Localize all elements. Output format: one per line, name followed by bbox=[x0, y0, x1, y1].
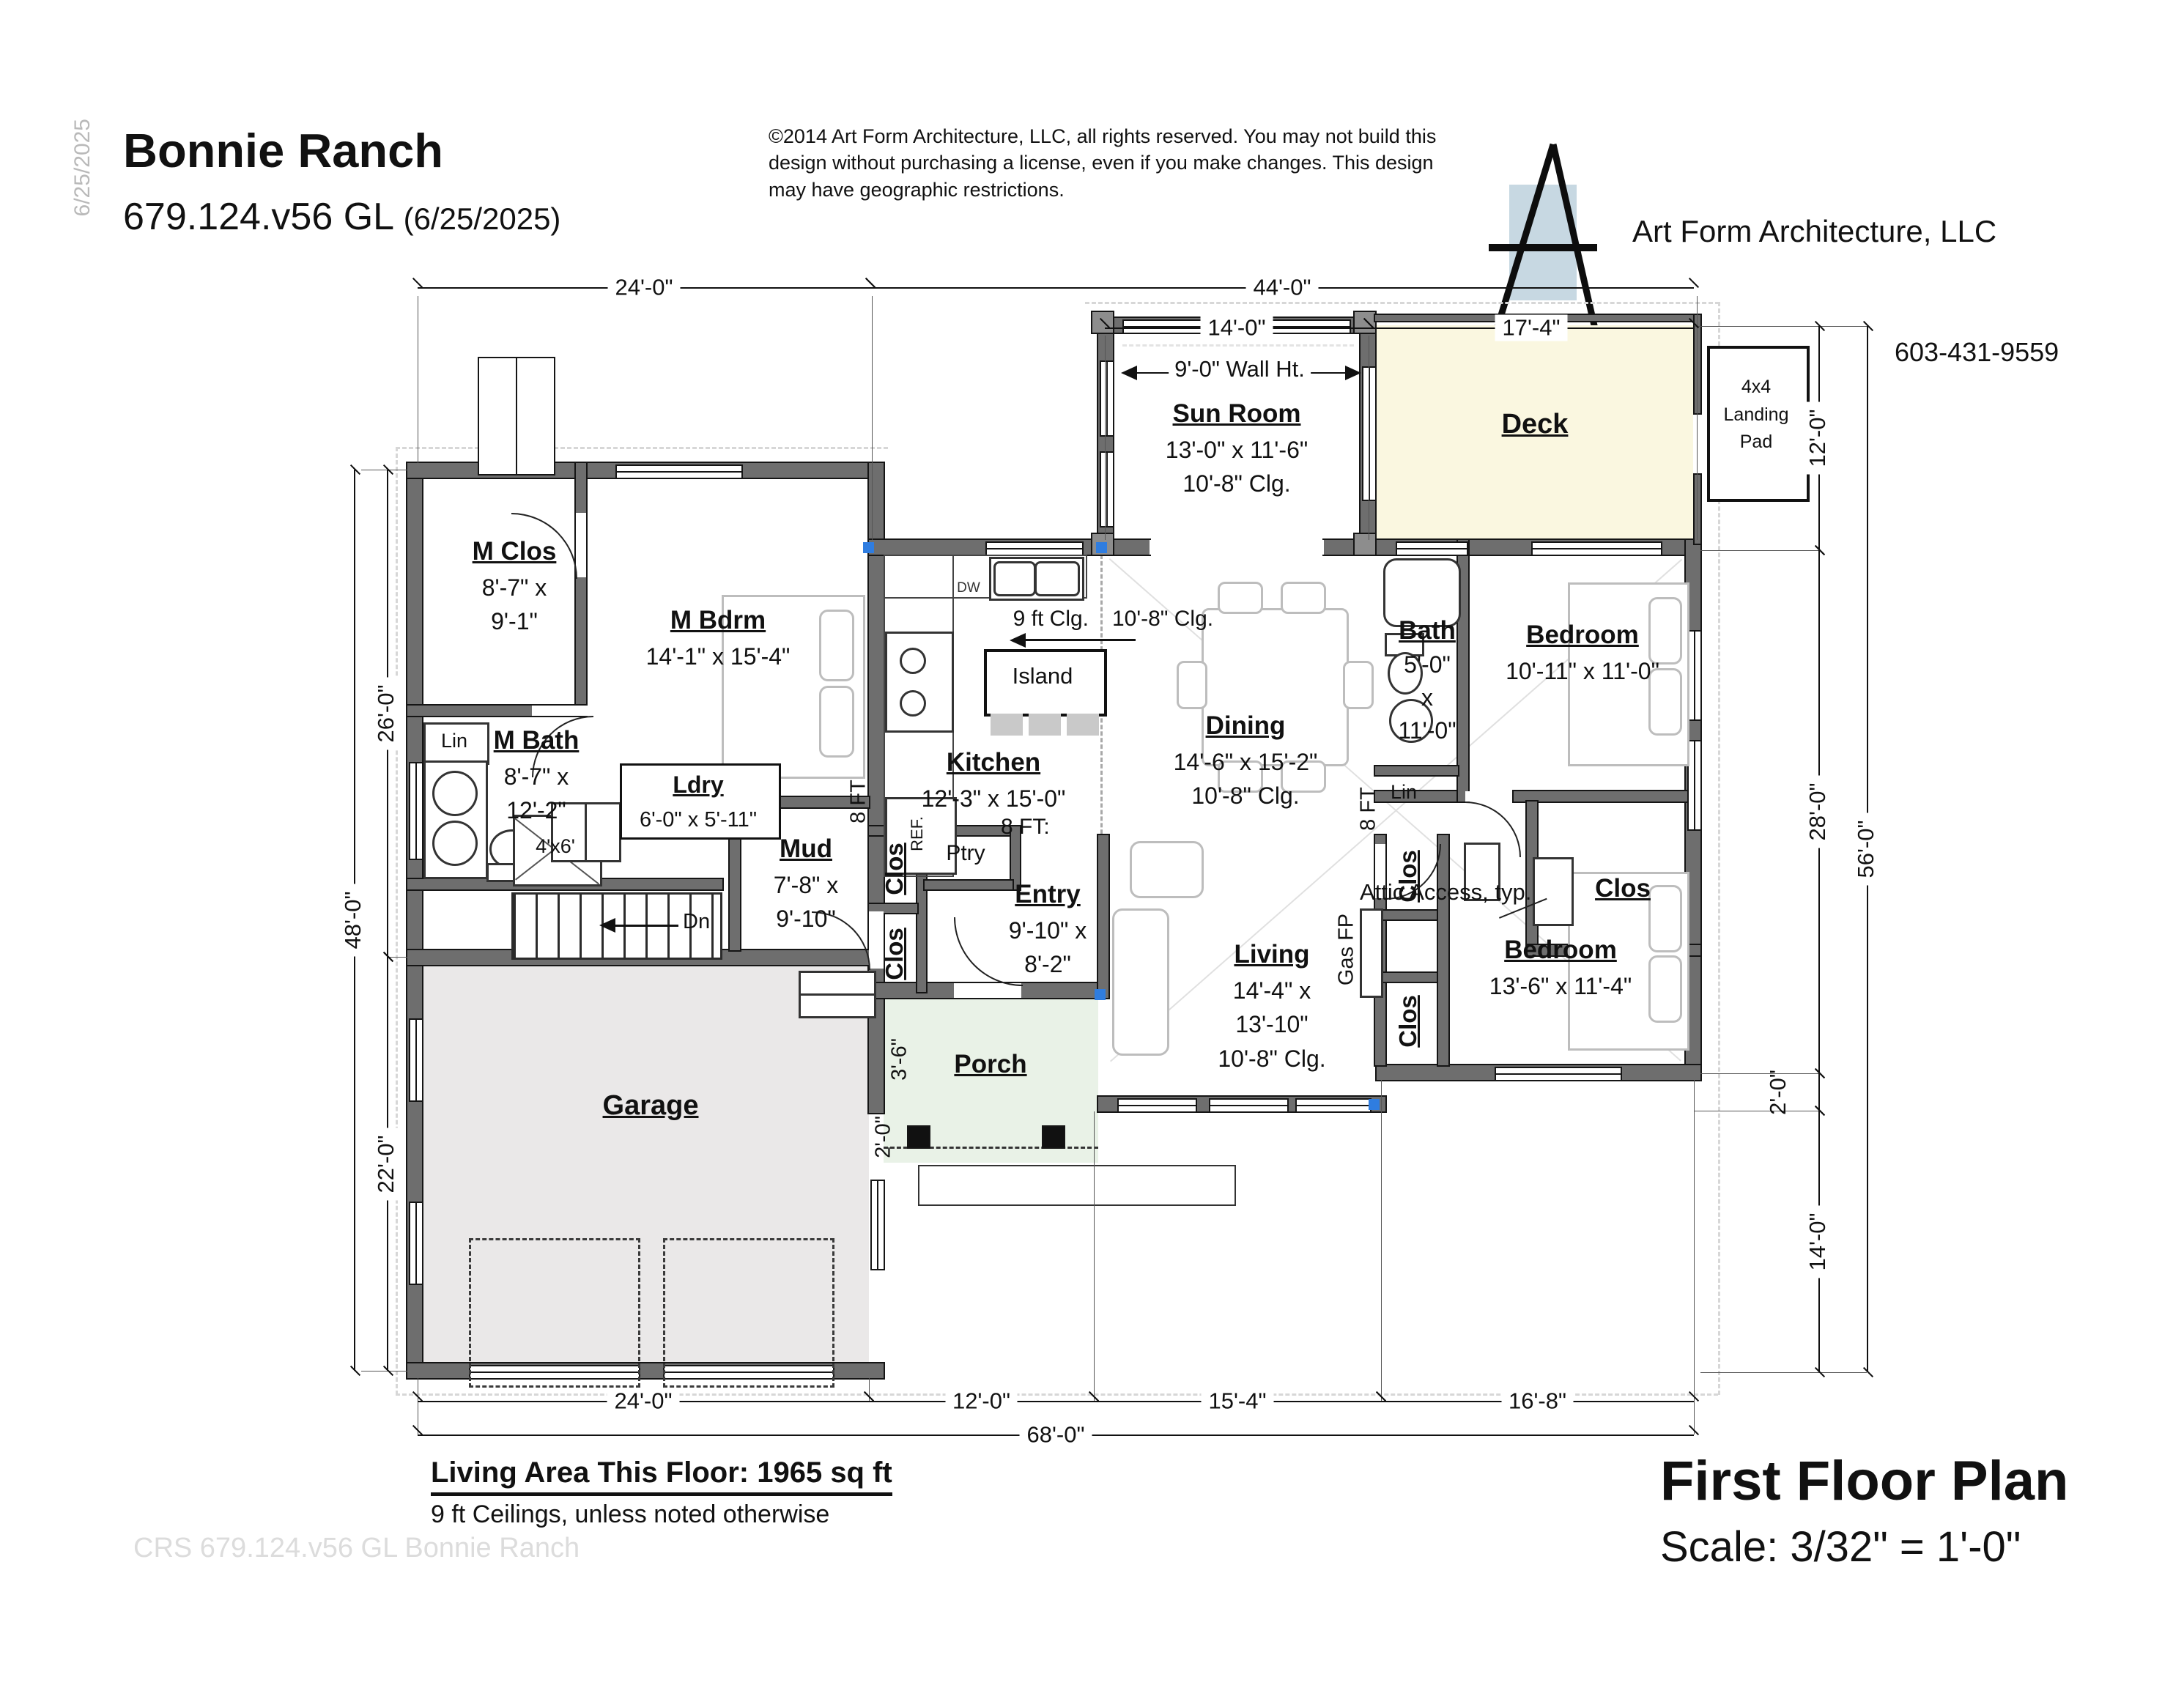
ref-label: REF. bbox=[908, 816, 927, 851]
dim-label: 56'-0" bbox=[1853, 813, 1879, 886]
deck-door bbox=[1362, 366, 1377, 501]
dim-bottom-bedroom: 16'-8" bbox=[1381, 1401, 1694, 1402]
window bbox=[1531, 541, 1662, 556]
dim-left-master: 26'-0" bbox=[387, 470, 388, 957]
eight-ft-marker: 8 FT bbox=[1357, 787, 1381, 831]
dim-right-deck: 12'-0" bbox=[1818, 326, 1820, 550]
sunroom-clg: 10'-8" Clg. bbox=[1182, 470, 1290, 497]
room-label-clos-bedroom1: Clos bbox=[1595, 870, 1651, 908]
living-area-note: Living Area This Floor: 1965 sq ft bbox=[431, 1456, 892, 1496]
wall bbox=[925, 881, 1013, 889]
landing-pad-label: 4x4 Landing Pad bbox=[1724, 374, 1789, 456]
deck-name: Deck bbox=[1502, 404, 1569, 445]
mbath-name: M Bath bbox=[494, 722, 580, 760]
porch-steps bbox=[918, 1165, 1236, 1206]
room-label-bedroom2: Bedroom 13'-6" x 11'-4" bbox=[1489, 932, 1632, 1003]
stool-icon bbox=[991, 714, 1023, 736]
chair-icon bbox=[1343, 661, 1374, 709]
room-label-bath: Bath 5'-0" x 11'-0" bbox=[1398, 612, 1456, 747]
extension-line bbox=[361, 1371, 407, 1371]
door-opening bbox=[532, 706, 592, 716]
dim-label: 2'-0" bbox=[1765, 1062, 1791, 1122]
dim-label: 14'-0" bbox=[1804, 1205, 1831, 1278]
drawing-scale: Scale: 3/32" = 1'-0" bbox=[1660, 1522, 2021, 1572]
dim-label: 24'-0" bbox=[608, 275, 681, 301]
pillow-icon bbox=[819, 610, 854, 681]
dim-bottom-garage: 24'-0" bbox=[418, 1401, 869, 1402]
front-door-opening bbox=[954, 983, 1021, 998]
wall bbox=[1375, 973, 1448, 982]
room-label-bedroom1: Bedroom 10'-11" x 11'-0" bbox=[1506, 617, 1659, 688]
living-name: Living bbox=[1218, 936, 1325, 974]
attic-access-note: Attic Access, typ. bbox=[1360, 879, 1531, 906]
kitchen-size: 12'-3" x 15'-0" bbox=[922, 785, 1066, 812]
extension-line bbox=[1695, 326, 1867, 327]
dim-top-garage: 24'-0" bbox=[418, 287, 870, 289]
chair-icon bbox=[1177, 661, 1207, 709]
chair-icon bbox=[1281, 582, 1326, 614]
extension-line bbox=[1700, 550, 1818, 551]
gas-fp-label: Gas FP bbox=[1335, 914, 1359, 985]
dim-label: 14'-0" bbox=[1201, 315, 1273, 341]
glazing-marker bbox=[1095, 989, 1106, 1000]
bath-size3: 11'-0" bbox=[1398, 717, 1456, 744]
garage-door-track bbox=[469, 1238, 640, 1388]
extension-line bbox=[1695, 1111, 1818, 1111]
chair-icon bbox=[1218, 582, 1263, 614]
copyright-note: ©2014 Art Form Architecture, LLC, all ri… bbox=[769, 123, 1443, 203]
room-label-living: Living 14'-4" x 13'-10" 10'-8" Clg. bbox=[1218, 936, 1325, 1076]
opening bbox=[1150, 540, 1324, 555]
pillow-icon bbox=[819, 686, 854, 758]
living-size1: 14'-4" x bbox=[1233, 977, 1311, 1004]
room-label-mbath: M Bath 8'-7" x 12'-2" bbox=[494, 722, 580, 828]
clos-bedroom1-name: Clos bbox=[1595, 870, 1651, 908]
dim-bottom-total: 68'-0" bbox=[418, 1435, 1694, 1436]
mbath-size1: 8'-7" x bbox=[504, 763, 569, 790]
ceiling-arrow-line bbox=[1026, 639, 1136, 641]
deck-rail bbox=[1695, 475, 1700, 544]
extension-line bbox=[1697, 296, 1698, 540]
pillow-icon bbox=[1648, 955, 1682, 1023]
company-logo-icon bbox=[1487, 128, 1612, 341]
stool-icon bbox=[1067, 714, 1099, 736]
room-label-dining: Dining 14'-6" x 15'-2" 10'-8" Clg. bbox=[1174, 708, 1318, 813]
extension-line bbox=[1105, 336, 1106, 540]
fireplace-icon bbox=[1360, 908, 1383, 998]
ceiling-9-note: 9 ft Clg. bbox=[942, 607, 1089, 632]
kitchen-name: Kitchen bbox=[922, 744, 1066, 782]
dining-size: 14'-6" x 15'-2" bbox=[1174, 749, 1318, 775]
watermark: CRS 679.124.v56 GL Bonnie Ranch bbox=[133, 1533, 580, 1564]
wall bbox=[576, 463, 586, 716]
door-opening bbox=[576, 513, 586, 577]
porch-post bbox=[1043, 1127, 1064, 1147]
eight-ft-note: 8 FT: bbox=[1001, 815, 1050, 840]
drawing-title: First Floor Plan bbox=[1660, 1449, 2068, 1513]
bedroom2-name: Bedroom bbox=[1489, 932, 1632, 969]
extension-line bbox=[1694, 1080, 1695, 1435]
dim-porch-depth: 3'-6" bbox=[888, 1038, 912, 1081]
company-name: Art Form Architecture, LLC bbox=[1632, 214, 1996, 249]
extension-line bbox=[418, 296, 418, 463]
wall bbox=[1375, 766, 1458, 775]
mud-name: Mud bbox=[774, 831, 839, 868]
porch-name: Porch bbox=[954, 1046, 1026, 1084]
living-clg: 10'-8" Clg. bbox=[1218, 1045, 1325, 1072]
mclos-size2: 9'-1" bbox=[491, 608, 538, 634]
dim-label: 12'-0" bbox=[945, 1388, 1018, 1415]
window bbox=[1117, 1098, 1197, 1113]
overhang-line bbox=[1085, 302, 1720, 304]
dim-label: 16'-8" bbox=[1501, 1388, 1574, 1415]
bath-name: Bath bbox=[1398, 612, 1456, 648]
sheet-side-date: 6/25/2025 bbox=[70, 119, 95, 216]
living-size2: 13'-10" bbox=[1235, 1011, 1308, 1037]
landing-pad-line1: 4x4 bbox=[1741, 377, 1771, 397]
clos-label: Clos bbox=[881, 843, 908, 895]
entry-size1: 9'-10" x bbox=[1009, 917, 1087, 944]
glazing-marker bbox=[863, 542, 874, 553]
door-opening bbox=[1465, 791, 1509, 802]
extension-line bbox=[872, 296, 873, 540]
wall-height-arrow bbox=[1121, 366, 1137, 380]
room-label-mclos: M Clos 8'-7" x 9'-1" bbox=[473, 533, 557, 639]
island-label: Island bbox=[1013, 663, 1073, 689]
wall bbox=[1438, 835, 1448, 1065]
sunroom-name: Sun Room bbox=[1166, 396, 1308, 433]
glazing-marker bbox=[1096, 542, 1107, 553]
room-label-sunroom: Sun Room 13'-0" x 11'-6" 10'-8" Clg. bbox=[1166, 396, 1308, 501]
stairs-down-label: Dn bbox=[683, 910, 710, 934]
dim-label: 68'-0" bbox=[1020, 1422, 1092, 1448]
deck-rail bbox=[1695, 315, 1700, 413]
dim-right-main: 28'-0" bbox=[1818, 550, 1820, 1073]
dryer-icon bbox=[585, 802, 621, 862]
mclos-name: M Clos bbox=[473, 533, 557, 571]
dim-label: 44'-0" bbox=[1246, 275, 1319, 301]
landing-pad-line3: Pad bbox=[1740, 432, 1772, 452]
landing-pad-line2: Landing bbox=[1724, 404, 1789, 425]
dw-label: DW bbox=[957, 580, 980, 596]
room-label-mbdrm: M Bdrm 14'-1" x 15'-4" bbox=[646, 602, 791, 673]
bath-size1: 5'-0" bbox=[1404, 651, 1451, 678]
room-label-mud: Mud 7'-8" x 9'-10" bbox=[774, 831, 839, 936]
entry-size2: 8'-2" bbox=[1024, 951, 1071, 977]
sunroom-ceiling-line bbox=[1122, 344, 1354, 347]
dim-label: 12'-0" bbox=[1804, 402, 1831, 475]
sunroom-size: 13'-0" x 11'-6" bbox=[1166, 437, 1308, 463]
post bbox=[1355, 312, 1375, 333]
dim-label: 28'-0" bbox=[1804, 776, 1831, 848]
dim-porch-overhang: 2'-0" bbox=[872, 1116, 896, 1158]
bedroom1-name: Bedroom bbox=[1506, 617, 1659, 654]
extension-line bbox=[1094, 1111, 1095, 1401]
glazing-marker bbox=[1369, 1099, 1380, 1110]
wall bbox=[1098, 835, 1108, 998]
mud-size2: 9'-10" bbox=[776, 906, 836, 932]
dim-bottom-porch: 12'-0" bbox=[869, 1401, 1094, 1402]
window bbox=[1209, 1098, 1289, 1113]
overhang-line bbox=[396, 447, 888, 449]
window bbox=[409, 1202, 423, 1285]
sink-icon bbox=[432, 771, 478, 816]
ceiling-108-note: 10'-8" Clg. bbox=[1112, 607, 1213, 632]
porch-post bbox=[908, 1127, 929, 1147]
extension-line bbox=[418, 1378, 418, 1435]
garage-name: Garage bbox=[603, 1086, 699, 1126]
clos-label: Clos bbox=[1394, 995, 1422, 1048]
dim-label: 48'-0" bbox=[340, 884, 366, 957]
lin-label: Lin bbox=[441, 730, 467, 752]
window bbox=[1687, 630, 1702, 721]
ldry-name: Ldry bbox=[640, 768, 757, 802]
shower-size-label: 4'x6' bbox=[536, 835, 575, 858]
dim-label: 22'-0" bbox=[373, 1128, 399, 1200]
dim-label: 24'-0" bbox=[607, 1388, 680, 1415]
sink-icon bbox=[432, 821, 478, 866]
sink-basin bbox=[1034, 561, 1080, 596]
dining-name: Dining bbox=[1174, 708, 1318, 745]
window bbox=[870, 1180, 885, 1270]
dim-top-deck: 17'-4" bbox=[1369, 327, 1694, 329]
plan-number: 679.124.v56 GL (6/25/2025) bbox=[123, 195, 560, 239]
extension-line bbox=[1381, 1080, 1382, 1401]
dim-top-sun: 14'-0" bbox=[1105, 327, 1369, 329]
lin-label: Lin bbox=[1391, 781, 1417, 804]
mclos-size1: 8'-7" x bbox=[482, 574, 547, 601]
step bbox=[799, 971, 876, 996]
page-title: Bonnie Ranch bbox=[123, 123, 443, 178]
dim-right-front: 14'-0" bbox=[1818, 1111, 1820, 1372]
dim-bottom-living: 15'-4" bbox=[1094, 1401, 1381, 1402]
mud-size1: 7'-8" x bbox=[774, 872, 839, 898]
stairs-arrow-head bbox=[599, 918, 615, 933]
window bbox=[1687, 740, 1702, 831]
window bbox=[1396, 541, 1468, 556]
ldry-size: 6'-0" x 5'-11" bbox=[640, 808, 757, 832]
eight-ft-marker: 8 FT bbox=[847, 780, 871, 823]
room-label-entry: Entry 9'-10" x 8'-2" bbox=[1009, 876, 1087, 982]
extension-line bbox=[1700, 1372, 1867, 1373]
ptry-label: Ptry bbox=[946, 841, 985, 866]
entry-name: Entry bbox=[1009, 876, 1087, 914]
dining-clg: 10'-8" Clg. bbox=[1191, 782, 1299, 809]
wall bbox=[1514, 791, 1700, 802]
room-label-kitchen: Kitchen 12'-3" x 15'-0" bbox=[922, 744, 1066, 815]
room-label-deck: Deck bbox=[1502, 404, 1569, 445]
dim-left-garage: 22'-0" bbox=[387, 957, 388, 1371]
extension-line bbox=[1700, 1073, 1818, 1074]
mbdrm-name: M Bdrm bbox=[646, 602, 791, 640]
pillow-icon bbox=[1648, 885, 1682, 952]
window bbox=[615, 464, 743, 479]
extension-line bbox=[361, 470, 407, 470]
ceiling-arrow-head bbox=[1010, 633, 1026, 648]
extension-line bbox=[1369, 336, 1369, 540]
sofa-icon bbox=[1112, 908, 1169, 1056]
plan-number-text: 679.124.v56 GL bbox=[123, 196, 393, 238]
garage-door-track bbox=[663, 1238, 834, 1388]
dim-left-total: 48'-0" bbox=[354, 470, 355, 1371]
dim-right-total: 56'-0" bbox=[1867, 326, 1868, 1372]
step bbox=[799, 993, 876, 1018]
burner-icon bbox=[900, 690, 926, 717]
wall-height-arrow bbox=[1345, 366, 1361, 380]
window bbox=[409, 762, 423, 860]
window bbox=[409, 1018, 423, 1102]
dim-label: 17'-4" bbox=[1495, 315, 1568, 341]
floor-plan-sheet: 6/25/2025 Bonnie Ranch 679.124.v56 GL (6… bbox=[0, 0, 2184, 1688]
room-label-garage: Garage bbox=[603, 1086, 699, 1126]
window bbox=[1295, 1098, 1372, 1113]
attic-hatch bbox=[1533, 857, 1574, 926]
dim-label: 26'-0" bbox=[373, 677, 399, 749]
bedroom1-size: 10'-11" x 11'-0" bbox=[1506, 658, 1659, 684]
burner-icon bbox=[900, 648, 926, 674]
overhang-line bbox=[396, 447, 398, 1395]
ceiling-note: 9 ft Ceilings, unless noted otherwise bbox=[431, 1500, 829, 1529]
bay-window bbox=[478, 357, 555, 475]
range-icon bbox=[885, 632, 954, 733]
mbath-size2: 12'-2" bbox=[506, 797, 566, 823]
window bbox=[1495, 1067, 1622, 1081]
window bbox=[1100, 360, 1114, 437]
bedroom2-size: 13'-6" x 11'-4" bbox=[1489, 973, 1632, 999]
sink-basin bbox=[993, 561, 1036, 596]
plan-date: (6/25/2025) bbox=[404, 201, 561, 236]
mbdrm-size: 14'-1" x 15'-4" bbox=[646, 643, 791, 670]
dim-label: 15'-4" bbox=[1202, 1388, 1274, 1415]
dim-top-main: 44'-0" bbox=[870, 287, 1694, 289]
wall bbox=[1375, 791, 1465, 802]
clos-label: Clos bbox=[881, 928, 908, 980]
dim-right-offset: 2'-0" bbox=[1818, 1073, 1820, 1111]
company-phone: 603-431-9559 bbox=[1895, 337, 2059, 368]
wall bbox=[1375, 911, 1448, 919]
stairs-arrow-line bbox=[615, 925, 678, 927]
window bbox=[1100, 451, 1114, 527]
post bbox=[1355, 534, 1375, 555]
window bbox=[985, 541, 1084, 556]
bath-size2: x bbox=[1421, 684, 1433, 711]
room-label-ldry: Ldry 6'-0" x 5'-11" bbox=[640, 768, 757, 836]
room-label-porch: Porch bbox=[954, 1046, 1026, 1084]
wall-height-note: 9'-0" Wall Ht. bbox=[1169, 356, 1311, 382]
armchair-icon bbox=[1130, 841, 1204, 898]
stool-icon bbox=[1029, 714, 1061, 736]
